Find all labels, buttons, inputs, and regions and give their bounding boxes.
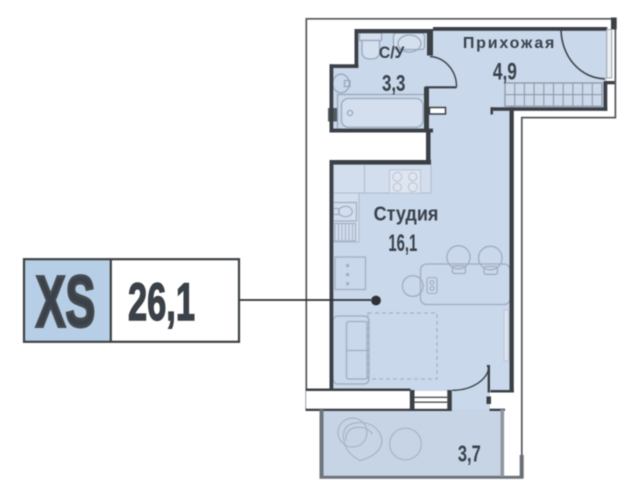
svg-text:3,3: 3,3	[382, 70, 406, 96]
svg-text:Студия: Студия	[374, 204, 439, 226]
svg-text:С/У: С/У	[379, 45, 406, 62]
svg-text:26,1: 26,1	[128, 274, 195, 332]
svg-text:3,7: 3,7	[458, 442, 481, 467]
svg-text:Прихожая: Прихожая	[463, 35, 556, 52]
svg-text:4,9: 4,9	[493, 59, 517, 85]
svg-text:XS: XS	[36, 262, 95, 343]
svg-text:16,1: 16,1	[388, 231, 417, 257]
